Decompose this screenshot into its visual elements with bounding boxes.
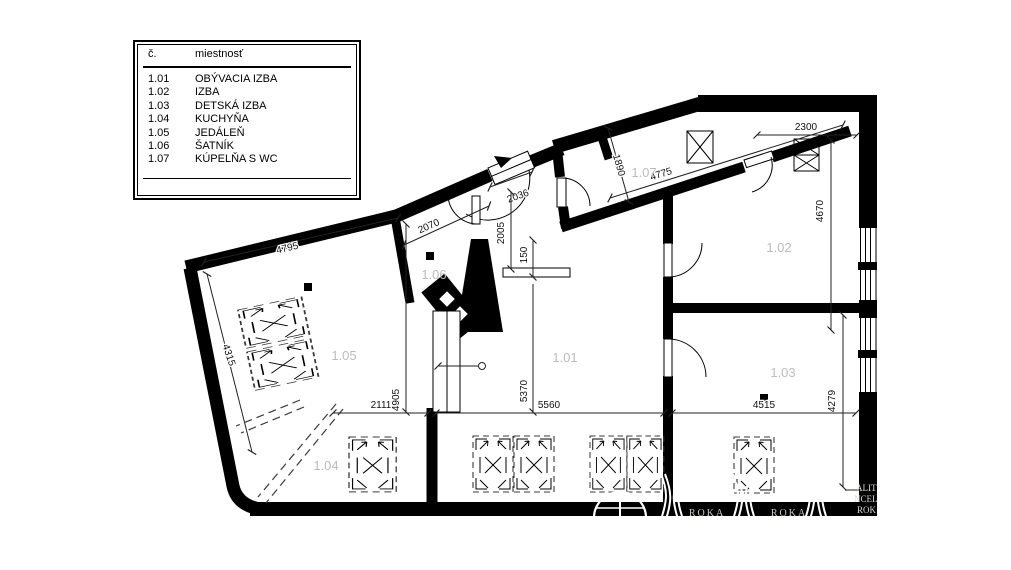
- legend-row: 1.05JEDÁLEŇ: [148, 127, 352, 140]
- legend-row: 1.06ŠATNÍK: [148, 140, 352, 153]
- dimension-label: 4315: [220, 343, 237, 368]
- watermark-fragment: NCEL: [854, 494, 878, 504]
- legend-col-no: č.: [148, 48, 195, 60]
- legend-rows: 1.01OBÝVACIA IZBA 1.02IZBA 1.03DETSKÁ IZ…: [148, 73, 352, 167]
- room-legend-frame: č. miestnosť 1.01OBÝVACIA IZBA 1.02IZBA …: [137, 44, 357, 196]
- skylight-symbol: [687, 131, 713, 163]
- wardrobe-symbol: [627, 436, 664, 492]
- room-label-106: 1.06: [421, 267, 446, 282]
- room-number: 1.04: [148, 113, 195, 125]
- watermark-roka: ROKA: [689, 508, 725, 519]
- legend-col-name: miestnosť: [195, 48, 243, 60]
- column-marker: [304, 283, 312, 291]
- room-number: 1.02: [148, 86, 195, 98]
- dimension-label: 150: [519, 246, 530, 263]
- room-number: 1.05: [148, 127, 195, 139]
- room-name: JEDÁLEŇ: [195, 127, 245, 139]
- room-name: KÚPELŇA S WC: [195, 153, 278, 165]
- kitchen-symbol: [349, 437, 396, 492]
- legend-row: 1.04KUCHYŇA: [148, 113, 352, 126]
- legend-header-rule: [143, 66, 351, 68]
- door-102: [664, 243, 702, 277]
- room-name: OBÝVACIA IZBA: [195, 73, 277, 85]
- watermark-roka: ROKA: [771, 508, 807, 519]
- dimension-label: 2300: [795, 122, 818, 133]
- legend-row: 1.07KÚPELŇA S WC: [148, 153, 352, 166]
- door-107: [557, 178, 590, 207]
- room-label-105: 1.05: [331, 348, 356, 363]
- room-labels: 1.01 1.02 1.03 1.04 1.05 1.06 1.07: [313, 165, 795, 473]
- door-106: [448, 194, 480, 224]
- watermark-fragment: ROK: [857, 505, 877, 515]
- room-number: 1.06: [148, 140, 195, 152]
- table-symbol: [247, 339, 319, 391]
- room-label-102: 1.02: [766, 240, 791, 255]
- wardrobe-symbol: [514, 436, 554, 492]
- room-label-107: 1.07: [631, 165, 656, 180]
- legend-header: č. miestnosť: [148, 48, 195, 60]
- legend-row: 1.02IZBA: [148, 86, 352, 99]
- door-103: [664, 339, 706, 377]
- watermark-fragment: ALIT: [856, 483, 877, 493]
- dimension-label: 4905: [391, 388, 402, 411]
- dimension-label: 5370: [519, 379, 530, 402]
- room-label-104: 1.04: [313, 458, 338, 473]
- legend-row: 1.01OBÝVACIA IZBA: [148, 73, 352, 86]
- room-name: IZBA: [195, 86, 219, 98]
- wardrobe-symbol: [590, 436, 627, 492]
- room-name: ŠATNÍK: [195, 140, 234, 152]
- dimension-label: 5560: [538, 400, 561, 411]
- dimension-label: 2005: [496, 221, 507, 244]
- room-name: DETSKÁ IZBA: [195, 100, 267, 112]
- room-label-101: 1.01: [552, 350, 577, 365]
- dimension-label: 4515: [753, 400, 776, 411]
- dimension-label: 2111: [371, 400, 392, 411]
- room-number: 1.01: [148, 73, 195, 85]
- dimension-label: 4279: [827, 389, 838, 412]
- door-107-to-102: [744, 151, 774, 192]
- dimension-label: 1890: [610, 153, 627, 178]
- table-symbol: [238, 297, 310, 349]
- column-marker: [426, 252, 434, 260]
- legend-row: 1.03DETSKÁ IZBA: [148, 100, 352, 113]
- room-number: 1.03: [148, 100, 195, 112]
- dimension-label: 4670: [815, 199, 826, 222]
- wardrobe-symbol: [473, 436, 513, 492]
- skylight-symbol: [794, 155, 819, 171]
- floor-plan-page: 4795 4315 2070 2036 2005 150 5370 1890 4…: [0, 0, 1011, 570]
- dimension-label: 2036: [506, 188, 531, 206]
- legend-bottom-rule: [143, 178, 351, 179]
- room-legend: č. miestnosť 1.01OBÝVACIA IZBA 1.02IZBA …: [133, 40, 361, 200]
- room-number: 1.07: [148, 153, 195, 165]
- room-label-103: 1.03: [770, 365, 795, 380]
- room-name: KUCHYŇA: [195, 113, 249, 125]
